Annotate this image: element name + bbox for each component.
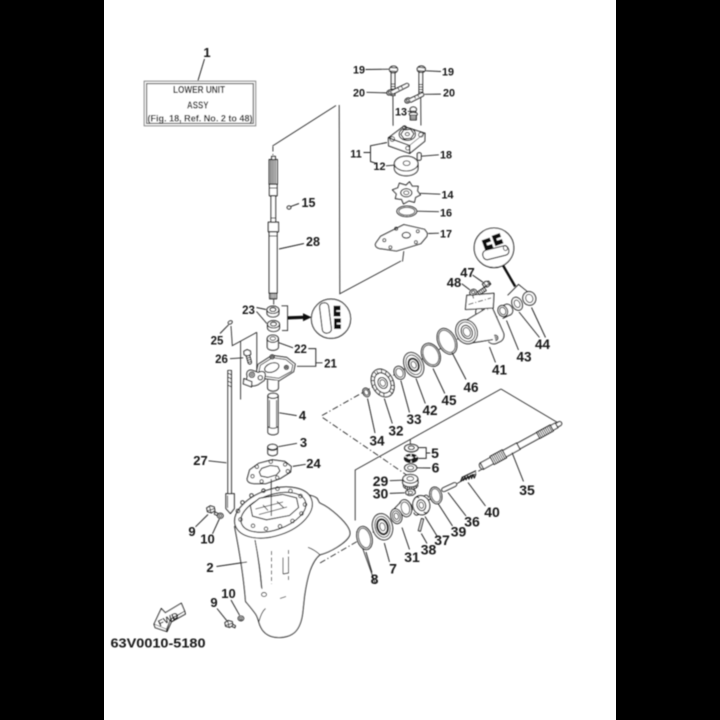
svg-text:38: 38 (421, 541, 437, 557)
svg-text:8: 8 (371, 571, 379, 587)
svg-text:46: 46 (463, 380, 479, 395)
svg-text:6: 6 (432, 460, 440, 476)
svg-text:30: 30 (373, 485, 389, 501)
svg-text:9: 9 (188, 524, 195, 539)
svg-text:21: 21 (324, 359, 337, 371)
svg-text:1: 1 (203, 45, 210, 60)
svg-text:7: 7 (389, 561, 397, 577)
svg-text:17: 17 (440, 228, 452, 240)
svg-text:19: 19 (442, 67, 454, 79)
svg-text:22: 22 (294, 344, 307, 356)
svg-text:(Fig. 18, Ref. No. 2 to 48): (Fig. 18, Ref. No. 2 to 48) (148, 113, 253, 124)
svg-text:12: 12 (373, 161, 385, 173)
svg-text:18: 18 (440, 150, 452, 162)
svg-text:45: 45 (441, 393, 457, 408)
svg-text:44: 44 (535, 337, 551, 352)
svg-text:16: 16 (440, 207, 452, 219)
svg-text:40: 40 (484, 504, 500, 520)
svg-text:48: 48 (447, 275, 461, 290)
svg-text:4: 4 (299, 408, 307, 423)
svg-text:14: 14 (441, 189, 453, 201)
svg-text:10: 10 (221, 586, 235, 601)
svg-text:41: 41 (492, 363, 508, 378)
svg-text:15: 15 (302, 196, 316, 210)
svg-text:23: 23 (242, 305, 255, 317)
svg-text:27: 27 (193, 453, 207, 468)
svg-text:42: 42 (422, 403, 437, 418)
svg-text:37: 37 (434, 532, 450, 548)
svg-text:25: 25 (211, 336, 224, 348)
svg-text:63V0010-5180: 63V0010-5180 (111, 636, 206, 651)
svg-text:31: 31 (404, 549, 420, 565)
svg-text:26: 26 (215, 354, 228, 366)
svg-text:33: 33 (406, 412, 422, 427)
svg-text:36: 36 (464, 514, 480, 530)
svg-text:35: 35 (519, 482, 535, 498)
svg-text:43: 43 (516, 350, 532, 365)
svg-text:24: 24 (306, 456, 321, 471)
svg-text:19: 19 (353, 64, 365, 76)
svg-text:32: 32 (388, 424, 403, 439)
svg-text:LOWER UNIT: LOWER UNIT (173, 85, 226, 96)
svg-text:20: 20 (443, 88, 455, 100)
svg-text:5: 5 (431, 445, 439, 461)
svg-text:28: 28 (306, 235, 320, 249)
svg-text:47: 47 (460, 265, 474, 280)
svg-text:ASSY: ASSY (187, 100, 209, 111)
svg-text:9: 9 (210, 595, 217, 610)
svg-text:2: 2 (206, 560, 213, 575)
svg-text:11: 11 (350, 148, 361, 160)
svg-text:20: 20 (353, 87, 365, 99)
svg-text:34: 34 (369, 433, 385, 448)
svg-text:13: 13 (395, 107, 407, 119)
svg-text:3: 3 (300, 435, 307, 450)
